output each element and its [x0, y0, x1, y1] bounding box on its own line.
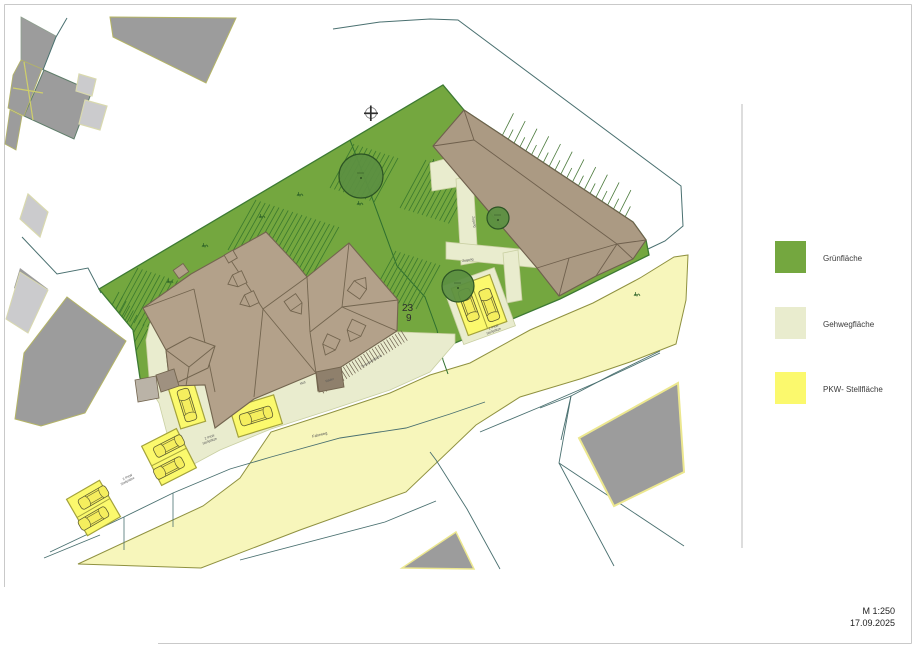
- svg-text:PKW- Stellfläche: PKW- Stellfläche: [823, 385, 883, 394]
- svg-text:Grünfläche: Grünfläche: [823, 254, 863, 263]
- svg-text:17.09.2025: 17.09.2025: [850, 618, 895, 628]
- svg-text:9: 9: [406, 313, 412, 324]
- svg-text:M 1:250: M 1:250: [862, 606, 895, 616]
- svg-text:Gehwegfläche: Gehwegfläche: [823, 320, 875, 329]
